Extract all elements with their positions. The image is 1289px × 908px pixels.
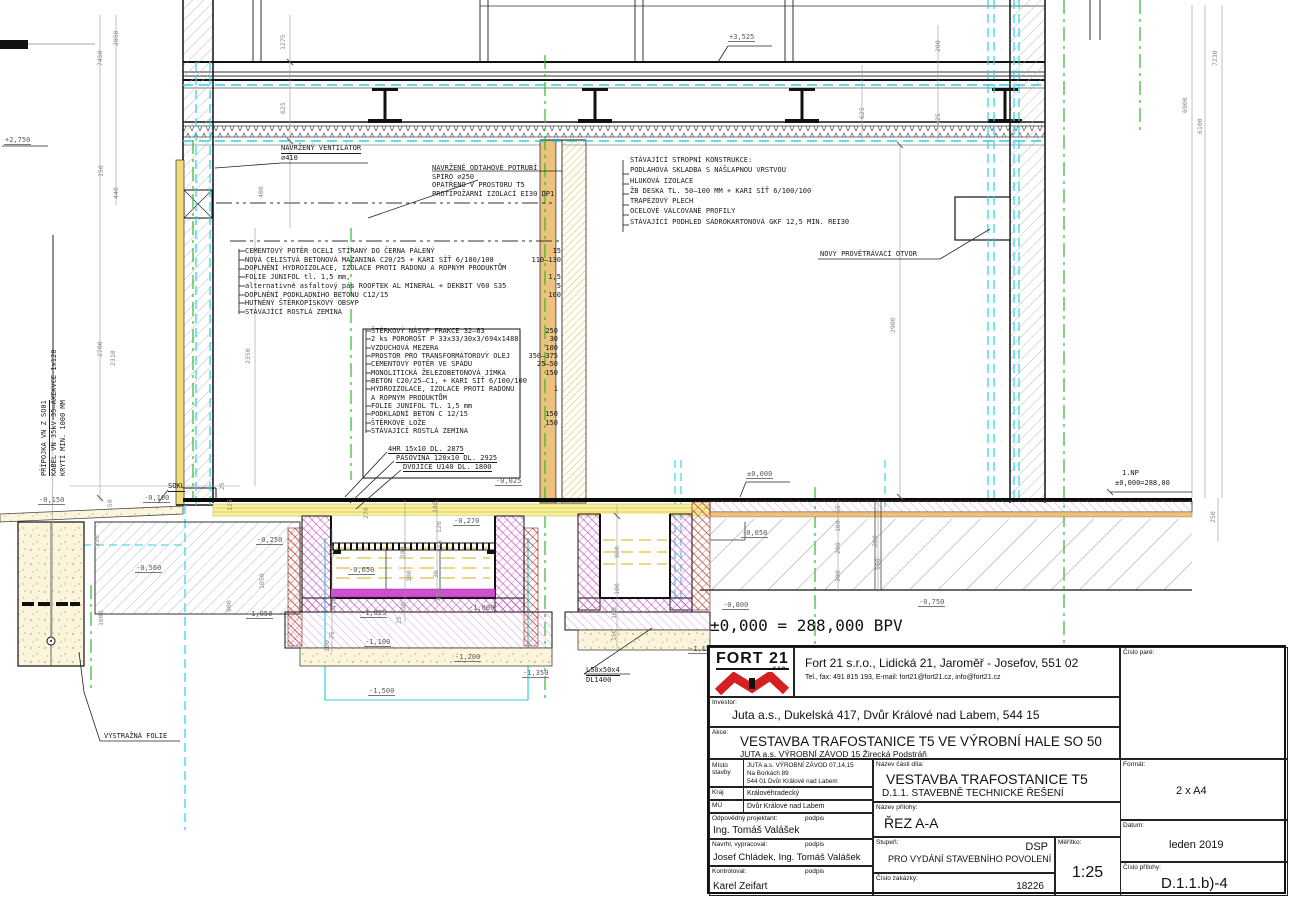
akce-cell: Akce: VESTAVBA TRAFOSTANICE T5 VE VÝROBN… [709, 727, 1120, 759]
layer-item: VZDUCHOVÁ MEZERA100 [371, 344, 558, 352]
kontroloval-name: Karel Zeifart [713, 881, 767, 892]
dim-label: 200 [934, 40, 942, 52]
ceiling-layer-list: STÁVAJÍCÍ STROPNÍ KONSTRUKCE: PODLAHOVÁ … [630, 155, 849, 227]
nazev-casti-cell: Název části díla: VESTAVBA TRAFOSTANICE … [873, 759, 1121, 802]
duct-note-lines: SPIRO ⌀250OPATŘENO V PROSTORU T5PROTIPOŽ… [432, 173, 554, 199]
dim-label: 25 [395, 616, 403, 624]
l-profile-line2: DL1400 [586, 676, 620, 685]
dim-label: 250 [436, 540, 444, 552]
kraj-cell: Kraj Královéhradecký [709, 787, 873, 800]
level-label: -1,500 [368, 687, 395, 696]
note-line: OPATŘENO V PROSTORU T5 [432, 181, 554, 190]
right-wall [955, 0, 1045, 503]
level-label: -1,000 [468, 604, 495, 613]
note-line: SPIRO ⌀250 [432, 173, 554, 182]
misto-line3: 544 01 Dvůr Králové nad Labem [747, 778, 838, 785]
podpis-label: podpis [805, 841, 824, 848]
duct-note-line1: NAVRŽENÉ ODTAHOVÉ POTRUBÍ [432, 164, 554, 173]
level-label: -0,050 [741, 529, 768, 538]
layer-item: A ROPNÝM PRODUKTŮM [371, 394, 558, 402]
nazev-casti-value: VESTAVBA TRAFOSTANICE T5 [886, 771, 1088, 787]
nazev-casti-label: Název části díla: [876, 761, 924, 768]
layer-item: BETON C20/25–C1, + KARI SÍŤ 6/100/100 [371, 377, 558, 385]
upper-structure [253, 0, 1100, 62]
level-label: -1,100 [364, 638, 391, 647]
dim-label: 300 [834, 570, 842, 582]
layer-item: STÁVAJÍCÍ ROSTLÁ ZEMINA [245, 308, 561, 317]
dim-label: 200 [871, 535, 879, 547]
layer-item: HYDROIZOLACE, IZOLACE PROTI RADONU1 [371, 385, 558, 393]
level-label: +3,525 [728, 33, 755, 42]
misto-cell: Místo stavby JUTA a.s. VÝROBNÍ ZÁVOD 07,… [709, 759, 873, 787]
dim-label: 2700 [96, 341, 104, 357]
vent-note-line2: ⌀410 [281, 154, 361, 163]
nazev-casti-sub: D.1.1. STAVEBNĚ TECHNICKÉ ŘEŠENÍ [882, 788, 1064, 799]
note-line: PODLAHOVÁ SKLADBA S NÁŠLAPNOU VRSTVOU [630, 165, 849, 175]
level-label: -0,100 [143, 494, 170, 503]
level-label: -1,350 [522, 669, 549, 678]
note-line: TRAPÉZOVÝ PLECH [630, 196, 849, 206]
investor-cell: Investor: Juta a.s., Dukelská 417, Dvůr … [709, 697, 1120, 727]
logo-zigzag-icon [714, 672, 790, 696]
dim-label: 2350 [244, 348, 252, 364]
logo-cell: FORT 21 s.r.o. [709, 647, 794, 697]
dim-label: 7450 [96, 50, 104, 66]
meritko-label: Měřítko: [1058, 839, 1081, 846]
cislo-pare-cell: Číslo paré: [1120, 647, 1288, 759]
dim-label: 475 [330, 597, 338, 609]
dim-label: 30 [432, 570, 440, 578]
dim-label: 100 [613, 583, 621, 595]
dim-label: 100 [405, 570, 413, 582]
layer-item: DOPLNĚNÍ HYDROIZOLACE, IZOLACE PROTI RAD… [245, 264, 561, 273]
dim-label: 800 [613, 546, 621, 558]
dim-label: 350 [399, 602, 407, 614]
steel-beams [368, 88, 1022, 123]
divider [743, 760, 744, 786]
steel-item-text: 4HR 15x10 DL. 2875 [388, 445, 464, 454]
cislo-pare-label: Číslo paré: [1123, 649, 1154, 656]
dim-label: 7230 [1211, 50, 1219, 66]
kraj-label: Kraj [712, 789, 724, 796]
layer-item: ŠTĚRKOVÉ LOŽE150 [371, 419, 558, 427]
steel-item: PÁSOVINA 120x10 DL. 2925 [396, 454, 497, 463]
cislo-zakazky-cell: Číslo zakázky: 18226 [873, 873, 1055, 896]
note-line: ŽB DESKA TL. 50–100 MM + KARI SÍŤ 6/100/… [630, 186, 849, 196]
ceiling-structure [183, 62, 1045, 145]
datum-value: leden 2019 [1169, 839, 1223, 851]
investor-label: Investor: [712, 699, 737, 706]
dim-label: 350 [93, 535, 101, 547]
misto-label: Místo stavby [712, 762, 742, 776]
kraj-value: Královéhradecký [747, 790, 799, 797]
vent-note: NAVRŽENÝ VENTILÁTOR ⌀410 [281, 144, 361, 162]
dim-label: 900 [225, 600, 233, 612]
drawing-canvas: 7450205012756254001504402700231023506254… [0, 0, 1289, 908]
cislo-prilohy-value: D.1.1.b)-4 [1161, 875, 1228, 892]
warning-foil-label: VÝSTRAŽNÁ FOLIE [104, 732, 167, 741]
dim-label: 1000 [97, 610, 105, 626]
note-line: PROTIPOŽÁRNÍ IZOLACÍ EI30 DP1 [432, 190, 554, 199]
dim-label: 100 [610, 607, 618, 619]
level-label: -1,050 [246, 610, 273, 619]
level-label: -1,200 [454, 653, 481, 662]
level-label: -0,270 [453, 517, 480, 526]
meritko-value: 1:25 [1072, 864, 1103, 882]
podpis-label: podpis [805, 815, 824, 822]
dim-label: 120 [435, 521, 443, 533]
dim-label: 250 [1209, 511, 1217, 523]
steel-item: DVOJICE U140 DL. 1800 [403, 463, 492, 472]
layer-item: alternativně asfaltový pás ROOFTEK AL MI… [245, 282, 561, 291]
dim-label: 400 [257, 186, 265, 198]
dim-label: 425 [934, 113, 942, 125]
cislo-zakazky-label: Číslo zakázky: [876, 875, 918, 882]
dim-label: 75 [328, 631, 336, 639]
format-cell: Formát: 2 x A4 [1120, 759, 1288, 820]
floor-name-label: 1.NP [1122, 469, 1139, 478]
dim-label: 270 [362, 507, 370, 519]
layer-item: MONOLITICKÁ ŽELEZOBETONOVÁ JÍMKA150 [371, 369, 558, 377]
format-value: 2 x A4 [1176, 785, 1207, 797]
title-block: FORT 21 s.r.o. Fort 21 s.r.o., Lidická 2… [707, 645, 1286, 894]
datum-label: Datum: [1123, 822, 1144, 829]
stupen-label: Stupeň: [876, 839, 898, 846]
dim-label: 2900 [889, 317, 897, 333]
projektant-cell: Odpovědný projektant: podpis Ing. Tomáš … [709, 813, 873, 839]
level-label: -0,560 [135, 564, 162, 573]
mu-value: Dvůr Králové nad Labem [747, 803, 824, 810]
navrhl-label: Navrhl, vypracoval: [712, 841, 767, 848]
cable-note: PŘÍPOJKA VN Z SO01KABEL VN 35kV 35–AXEKV… [40, 224, 68, 476]
dim-label: 140 [431, 501, 439, 513]
dim-label: 6100 [1196, 118, 1204, 134]
akce-value: VESTAVBA TRAFOSTANICE T5 VE VÝROBNÍ HALE… [740, 734, 1102, 749]
steel-item-text: DVOJICE U140 DL. 1800 [403, 463, 492, 472]
level-label: -0,800 [722, 601, 749, 610]
layer-item: PODKLADNÍ BETON C 12/15150 [371, 410, 558, 418]
level-label: -0,750 [918, 598, 945, 607]
layer-item: CEMENTOVÝ POTĚR OCELI STÍRANÝ DO ČERNA P… [245, 247, 561, 256]
dim-label: 1275 [279, 34, 287, 50]
bpv-datum-label: ±0,000 = 288,000 BPV [710, 616, 903, 635]
dim-label: 550 [328, 545, 336, 557]
floor-level-label: ±0,000=288,00 [1115, 479, 1170, 488]
dim-label: 65 [834, 505, 842, 513]
steel-item-text: PÁSOVINA 120x10 DL. 2925 [396, 454, 497, 463]
level-label: ±0,000 [746, 470, 773, 479]
misto-line1: JUTA a.s. VÝROBNÍ ZÁVOD 07,14,15 [747, 762, 854, 769]
dim-label: 450 [435, 589, 443, 601]
dim-label: 625 [858, 107, 866, 119]
section-mark [0, 40, 28, 49]
dim-label: 125 [226, 499, 234, 511]
meritko-cell: Měřítko: 1:25 [1055, 837, 1121, 896]
akce-label: Akce: [712, 729, 728, 736]
podpis-label: podpis [805, 868, 824, 875]
l-profile-line1: L50x50x4 [586, 666, 620, 676]
l-profile-label: L50x50x4 DL1400 [586, 666, 620, 684]
stupen-cell: Stupeň: DSP PRO VYDÁNÍ STAVEBNÍHO POVOLE… [873, 837, 1055, 873]
dim-label: 2050 [112, 30, 120, 46]
cislo-prilohy-label: Číslo přílohy: [1123, 864, 1161, 871]
layer-item: DOPLNĚNÍ PODKLADNÍHO BETONU C12/15100 [245, 291, 561, 300]
level-label: +2,750 [4, 136, 31, 145]
nazev-prilohy-cell: Název přílohy: ŘEZ A-A [873, 802, 1121, 837]
dim-label: 100 [834, 520, 842, 532]
divider [743, 788, 744, 799]
level-label: -0,150 [38, 496, 65, 505]
dim-label: 500 [874, 558, 882, 570]
format-label: Formát: [1123, 761, 1145, 768]
misto-line2: Na Borkách 89 [747, 770, 789, 777]
stupen-value: PRO VYDÁNÍ STAVEBNÍHO POVOLENÍ [888, 854, 1051, 864]
steel-item: 4HR 15x10 DL. 2875 [388, 445, 464, 454]
vent-hole-label: NOVÝ PROVĚTRÁVACÍ OTVOR [820, 250, 917, 259]
dim-label: 150 [97, 165, 105, 177]
layer-item: CEMENTOVÝ POTĚR VE SPÁDU25–50 [371, 360, 558, 368]
nazev-prilohy-label: Název přílohy: [876, 804, 918, 811]
ceiling-list-title: STÁVAJÍCÍ STROPNÍ KONSTRUKCE: [630, 155, 849, 165]
channel-pit [565, 502, 710, 650]
company-contacts: Tel., fax: 491 815 193, E-mail: fort21@f… [805, 674, 1001, 681]
dim-label: 150 [610, 629, 618, 641]
pit-layer-list: ŠTĚRKOVÝ NÁSYP FRAKCE 32–632502 ks POROR… [371, 327, 558, 435]
dim-label: 280 [399, 546, 407, 558]
note-line: STÁVAJÍCÍ PODHLED SÁDROKARTONOVÁ GKF 12,… [630, 217, 849, 227]
vent-note-line1: NAVRŽENÝ VENTILÁTOR [281, 144, 361, 154]
kontroloval-label: Kontroloval: [712, 868, 746, 875]
navrhl-cell: Navrhl, vypracoval: podpis Josef Chládek… [709, 839, 873, 866]
akce-sub: JUTA a.s. VÝROBNÍ ZÁVOD 15 Žirecká Podst… [740, 749, 927, 759]
floor-layer-list: CEMENTOVÝ POTĚR OCELI STÍRANÝ DO ČERNA P… [245, 247, 561, 317]
layer-item: HUTNĚNÝ ŠTĚRKOPÍSKOVÝ OBSYP [245, 299, 561, 308]
dim-label: 150 [106, 499, 114, 511]
duct-axis [216, 203, 560, 241]
level-label: -0,650 [348, 566, 375, 575]
navrhl-name: Josef Chládek, Ing. Tomáš Valášek [713, 852, 861, 863]
level-label: -0,250 [256, 536, 283, 545]
dim-label: 440 [112, 187, 120, 199]
dim-label: 200 [834, 542, 842, 554]
layer-item: FOLIE JUNIFOL tl. 1,5 mm,1,5 [245, 273, 561, 282]
level-label: -1,025 [360, 609, 387, 618]
note-line: KABEL VN 35kV 35–AXEKVCE 1x120 [50, 224, 59, 476]
dim-label: 2310 [109, 350, 117, 366]
mu-label: MÚ [712, 802, 722, 809]
investor-value: Juta a.s., Dukelská 417, Dvůr Králové na… [732, 708, 1040, 722]
cislo-zakazky-value: 18226 [1016, 881, 1044, 892]
dim-label: 6900 [1181, 97, 1189, 113]
note-line: KRYTÍ MIN. 1000 MM [59, 224, 68, 476]
datum-cell: Datum: leden 2019 [1120, 820, 1288, 862]
company-address: Fort 21 s.r.o., Lidická 21, Jaroměř - Jo… [805, 656, 1078, 670]
divider [743, 801, 744, 812]
dim-label: 625 [279, 102, 287, 114]
layer-item: 2 ks POROROŠT P 33x33/30x3/694x148830 [371, 335, 558, 343]
company-cell: Fort 21 s.r.o., Lidická 21, Jaroměř - Jo… [794, 647, 1120, 697]
cislo-prilohy-cell: Číslo přílohy: D.1.1.b)-4 [1120, 862, 1288, 896]
layer-item: STÁVAJÍCÍ ROSTLÁ ZEMINA [371, 427, 558, 435]
kontroloval-cell: Kontroloval: podpis Karel Zeifart [709, 866, 873, 896]
ceiling-list-items: PODLAHOVÁ SKLADBA S NÁŠLAPNOU VRSTVOUHLU… [630, 165, 849, 227]
projektant-name: Ing. Tomáš Valášek [713, 825, 799, 836]
duct-note: NAVRŽENÉ ODTAHOVÉ POTRUBÍ SPIRO ⌀250OPAT… [432, 164, 554, 198]
nazev-prilohy-value: ŘEZ A-A [884, 815, 938, 831]
sokl-label: SOKL [168, 482, 185, 492]
mu-cell: MÚ Dvůr Králové nad Labem [709, 800, 873, 813]
projektant-label: Odpovědný projektant: [712, 815, 777, 822]
dim-label: 25 [218, 482, 226, 490]
dim-label: 100 [323, 640, 331, 652]
dim-label: 1050 [258, 573, 266, 589]
level-label: -0,025 [495, 477, 522, 486]
note-line: PŘÍPOJKA VN Z SO01 [40, 400, 50, 476]
stupen-dsp: DSP [1025, 841, 1048, 853]
note-line: HLUKOVÁ IZOLACE [630, 176, 849, 186]
note-line: OCELOVÉ VÁLCOVANÉ PROFILY [630, 206, 849, 216]
